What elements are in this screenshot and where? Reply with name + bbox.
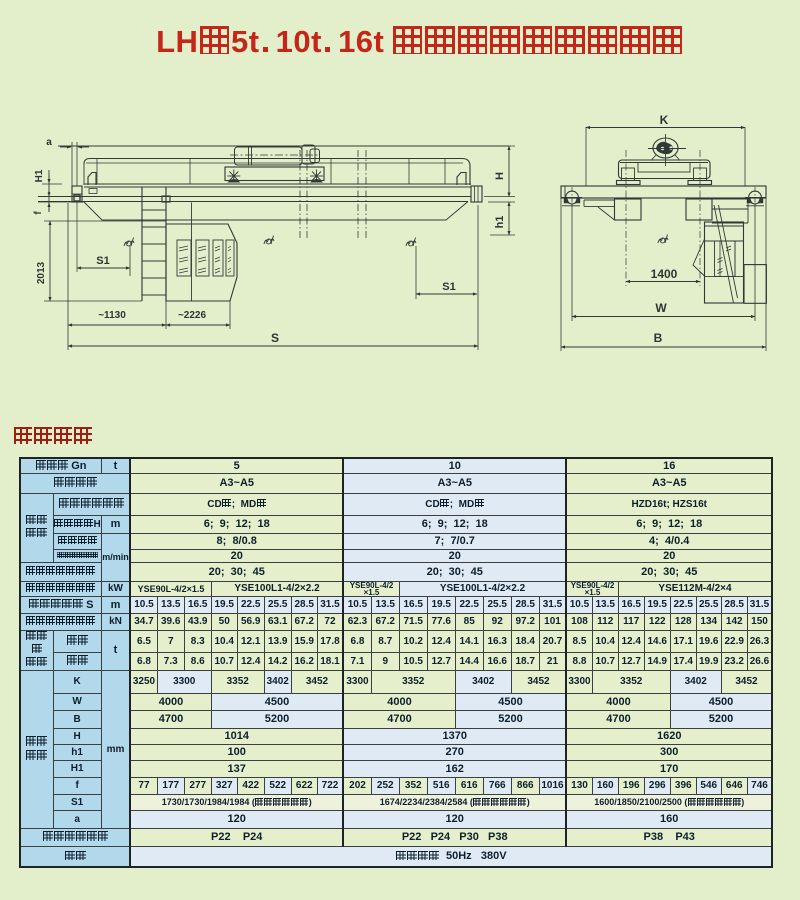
svg-text:H: H	[494, 172, 506, 180]
svg-text:~2226: ~2226	[178, 310, 207, 321]
svg-text:2013: 2013	[36, 261, 47, 284]
svg-text:H1: H1	[34, 169, 45, 182]
svg-text:S1: S1	[96, 255, 109, 267]
svg-text:f: f	[33, 211, 44, 215]
svg-text:h1: h1	[494, 216, 506, 229]
svg-text:W: W	[655, 301, 667, 315]
svg-text:B: B	[654, 331, 663, 345]
svg-text:a: a	[46, 137, 52, 148]
svg-text:S1: S1	[442, 281, 455, 293]
svg-text:1400: 1400	[651, 267, 678, 281]
svg-text:K: K	[660, 113, 669, 127]
svg-text:S: S	[271, 331, 279, 345]
svg-text:~1130: ~1130	[98, 310, 126, 321]
